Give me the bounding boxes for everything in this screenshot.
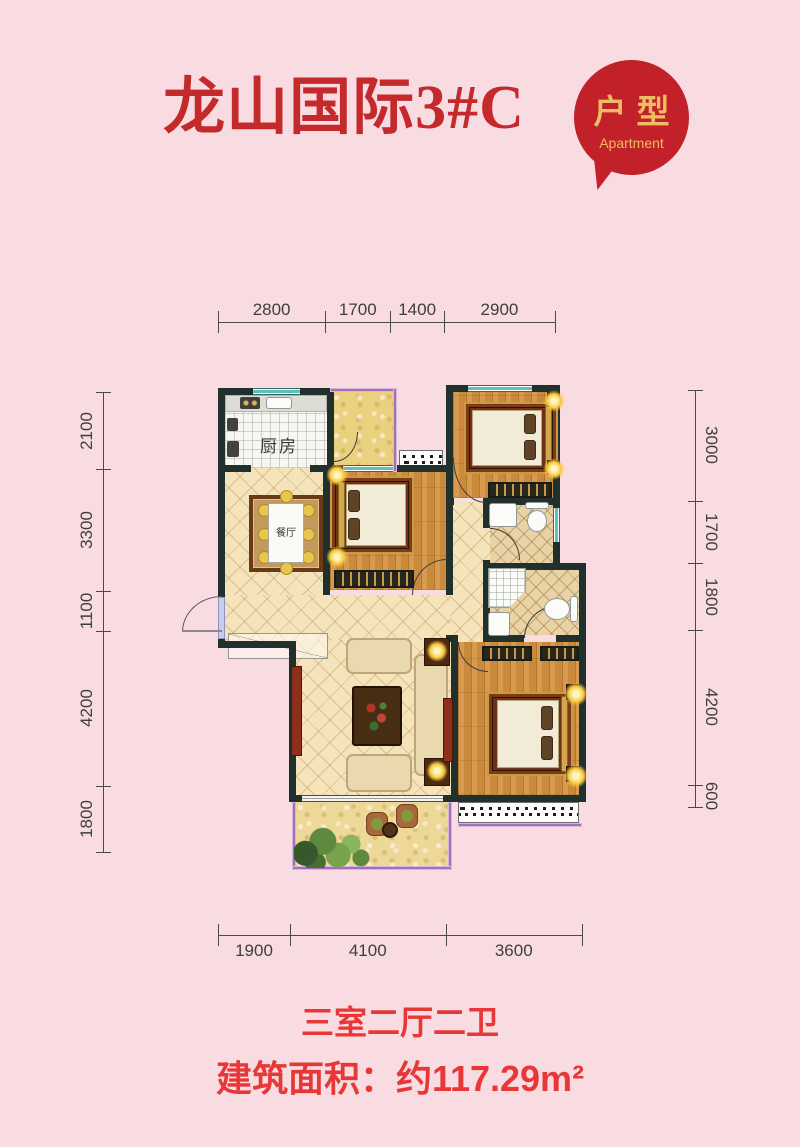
cabinet xyxy=(291,666,302,756)
dimension-value: 2100 xyxy=(77,412,97,450)
badge-label-en: Apartment xyxy=(599,135,664,151)
wall xyxy=(323,465,330,595)
dimension-tick xyxy=(555,311,556,333)
balcony-frame xyxy=(458,823,582,827)
window xyxy=(468,385,532,392)
cabinet xyxy=(443,698,453,762)
dimension-tick xyxy=(582,924,583,946)
dimension-line xyxy=(218,322,555,323)
wardrobe xyxy=(334,570,414,588)
bath-sink xyxy=(489,503,517,527)
wall xyxy=(446,465,453,595)
dimension-tick xyxy=(390,311,391,333)
dimension-value: 1100 xyxy=(77,593,97,630)
pillow xyxy=(524,414,536,434)
toilet xyxy=(544,598,570,620)
wall xyxy=(488,635,524,642)
dimension-value: 1800 xyxy=(701,578,721,616)
page-title: 龙山国际3#C xyxy=(118,74,570,142)
toilet-tank xyxy=(525,502,549,509)
ac-platform xyxy=(399,450,443,466)
sliding-door xyxy=(302,795,443,802)
dimension-tick xyxy=(96,469,111,470)
caption-room-layout: 三室二厅二卫 xyxy=(0,996,800,1044)
dimension-tick xyxy=(96,591,111,592)
toilet xyxy=(527,510,547,532)
wall xyxy=(327,388,334,472)
window xyxy=(253,388,300,395)
floorplan-page: 户型 Apartment 龙山国际3#C 2800170014002900 21… xyxy=(0,0,800,1147)
headboard xyxy=(338,482,345,548)
wall xyxy=(556,635,586,642)
kitchen-room-label: 厨房 xyxy=(244,432,314,457)
dimension-value: 3000 xyxy=(701,426,721,464)
pillow xyxy=(541,706,553,730)
dimension-tick xyxy=(688,501,703,502)
lamp-glow xyxy=(543,458,565,480)
wardrobe xyxy=(482,646,532,661)
caption-building-area: 建筑面积：约117.29m² xyxy=(0,1050,800,1102)
dining-chair xyxy=(280,562,293,575)
dimension-tick xyxy=(325,311,326,333)
dimension-value: 4200 xyxy=(701,688,721,726)
kitchen-appliance xyxy=(227,418,238,431)
dimension-tick xyxy=(218,924,219,946)
dimension-value: 3300 xyxy=(77,511,97,549)
bay-window xyxy=(458,802,579,823)
dimension-line xyxy=(695,390,696,807)
dimension-value: 2800 xyxy=(253,300,291,320)
lamp-glow xyxy=(326,546,348,568)
dimension-value: 4200 xyxy=(77,690,97,728)
wall xyxy=(289,795,302,802)
dimension-line xyxy=(103,392,104,852)
headboard xyxy=(561,696,568,772)
entry-door-arc xyxy=(182,596,222,632)
dimension-tick xyxy=(96,786,111,787)
dimension-tick xyxy=(96,392,111,393)
dimension-value: 1700 xyxy=(339,300,377,320)
dimension-line xyxy=(218,935,582,936)
wall xyxy=(395,465,453,472)
lamp-glow xyxy=(564,764,588,788)
flowers xyxy=(362,696,392,736)
balcony-frame xyxy=(448,802,452,870)
wall xyxy=(458,795,586,802)
dimension-value: 1400 xyxy=(398,300,436,320)
toilet-tank xyxy=(570,596,578,622)
pillow xyxy=(348,490,360,512)
balcony-table xyxy=(382,822,398,838)
balcony-chair xyxy=(396,804,418,828)
dimension-value: 1900 xyxy=(235,941,273,961)
sofa xyxy=(346,638,412,674)
pillow xyxy=(524,440,536,460)
dining-room-label: 餐厅 xyxy=(262,524,310,539)
dimension-tick xyxy=(96,852,111,853)
dimension-value: 3600 xyxy=(495,941,533,961)
entry-door-open-leaf xyxy=(182,630,222,632)
window xyxy=(553,508,560,542)
dimension-value: 4100 xyxy=(349,941,387,961)
plants xyxy=(294,822,370,868)
dimension-tick xyxy=(444,311,445,333)
dimension-tick xyxy=(218,311,219,333)
dimension-tick xyxy=(446,924,447,946)
balcony-frame xyxy=(393,388,397,472)
dimension-tick xyxy=(688,390,703,391)
dimension-tick xyxy=(688,563,703,564)
lamp-glow xyxy=(564,682,588,706)
lamp-glow xyxy=(426,640,448,662)
lamp-glow xyxy=(326,464,348,486)
pillow xyxy=(541,736,553,760)
wardrobe xyxy=(488,482,552,498)
dimension-value: 600 xyxy=(701,782,721,810)
apartment-type-badge: 户型 Apartment xyxy=(574,60,689,175)
balcony-frame xyxy=(330,388,397,392)
lamp-glow xyxy=(543,390,565,412)
dimension-value: 1800 xyxy=(77,800,97,838)
dining-chair xyxy=(280,490,293,503)
kitchen-appliance xyxy=(227,441,239,457)
dimension-tick xyxy=(688,630,703,631)
wardrobe xyxy=(540,646,579,661)
wall xyxy=(218,465,251,472)
wall xyxy=(218,388,225,597)
sofa xyxy=(346,754,412,792)
wall xyxy=(218,641,296,648)
dimension-tick xyxy=(96,631,111,632)
plan-captions: 三室二厅二卫 建筑面积：约117.29m² xyxy=(0,996,800,1102)
dimension-value: 2900 xyxy=(481,300,519,320)
kitchen-sink xyxy=(266,397,292,409)
pillow xyxy=(348,518,360,540)
dimension-value: 1700 xyxy=(701,513,721,551)
bath-sink xyxy=(488,612,510,636)
kitchen-stove xyxy=(240,397,260,409)
badge-label-cn: 户型 xyxy=(594,85,680,133)
lamp-glow xyxy=(426,760,448,782)
dimension-tick xyxy=(290,924,291,946)
